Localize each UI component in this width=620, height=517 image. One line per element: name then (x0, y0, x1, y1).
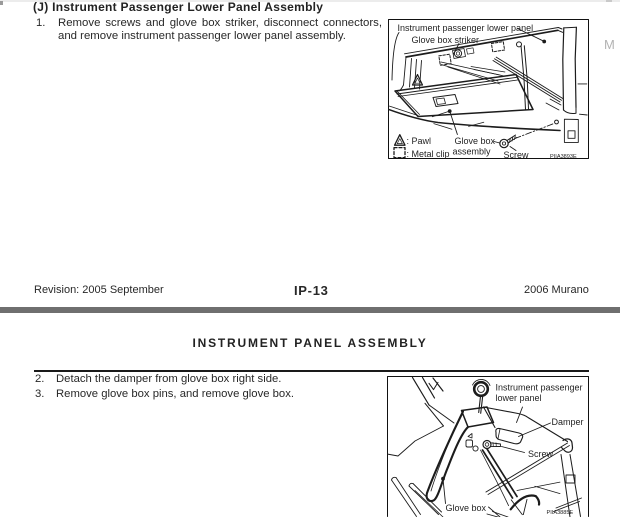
svg-text:: Pawl: : Pawl (407, 136, 432, 146)
svg-text:PIIA3893E: PIIA3893E (550, 154, 577, 159)
svg-text:Glove box: Glove box (446, 503, 487, 513)
svg-text:Screw: Screw (504, 150, 530, 159)
svg-text:Instrument passenger: Instrument passenger (496, 382, 583, 392)
svg-text:Glove box: Glove box (455, 136, 496, 146)
svg-text:PIIA3885E: PIIA3885E (547, 510, 574, 516)
svg-text:: Metal clip: : Metal clip (407, 149, 450, 159)
svg-text:assembly: assembly (453, 147, 492, 157)
svg-text:Glove box striker: Glove box striker (412, 35, 480, 45)
svg-text:Screw: Screw (528, 449, 554, 459)
svg-text:Instrument passenger lower pan: Instrument passenger lower panel (398, 23, 534, 33)
svg-text:lower panel: lower panel (496, 393, 542, 403)
svg-text:Damper: Damper (552, 417, 584, 427)
